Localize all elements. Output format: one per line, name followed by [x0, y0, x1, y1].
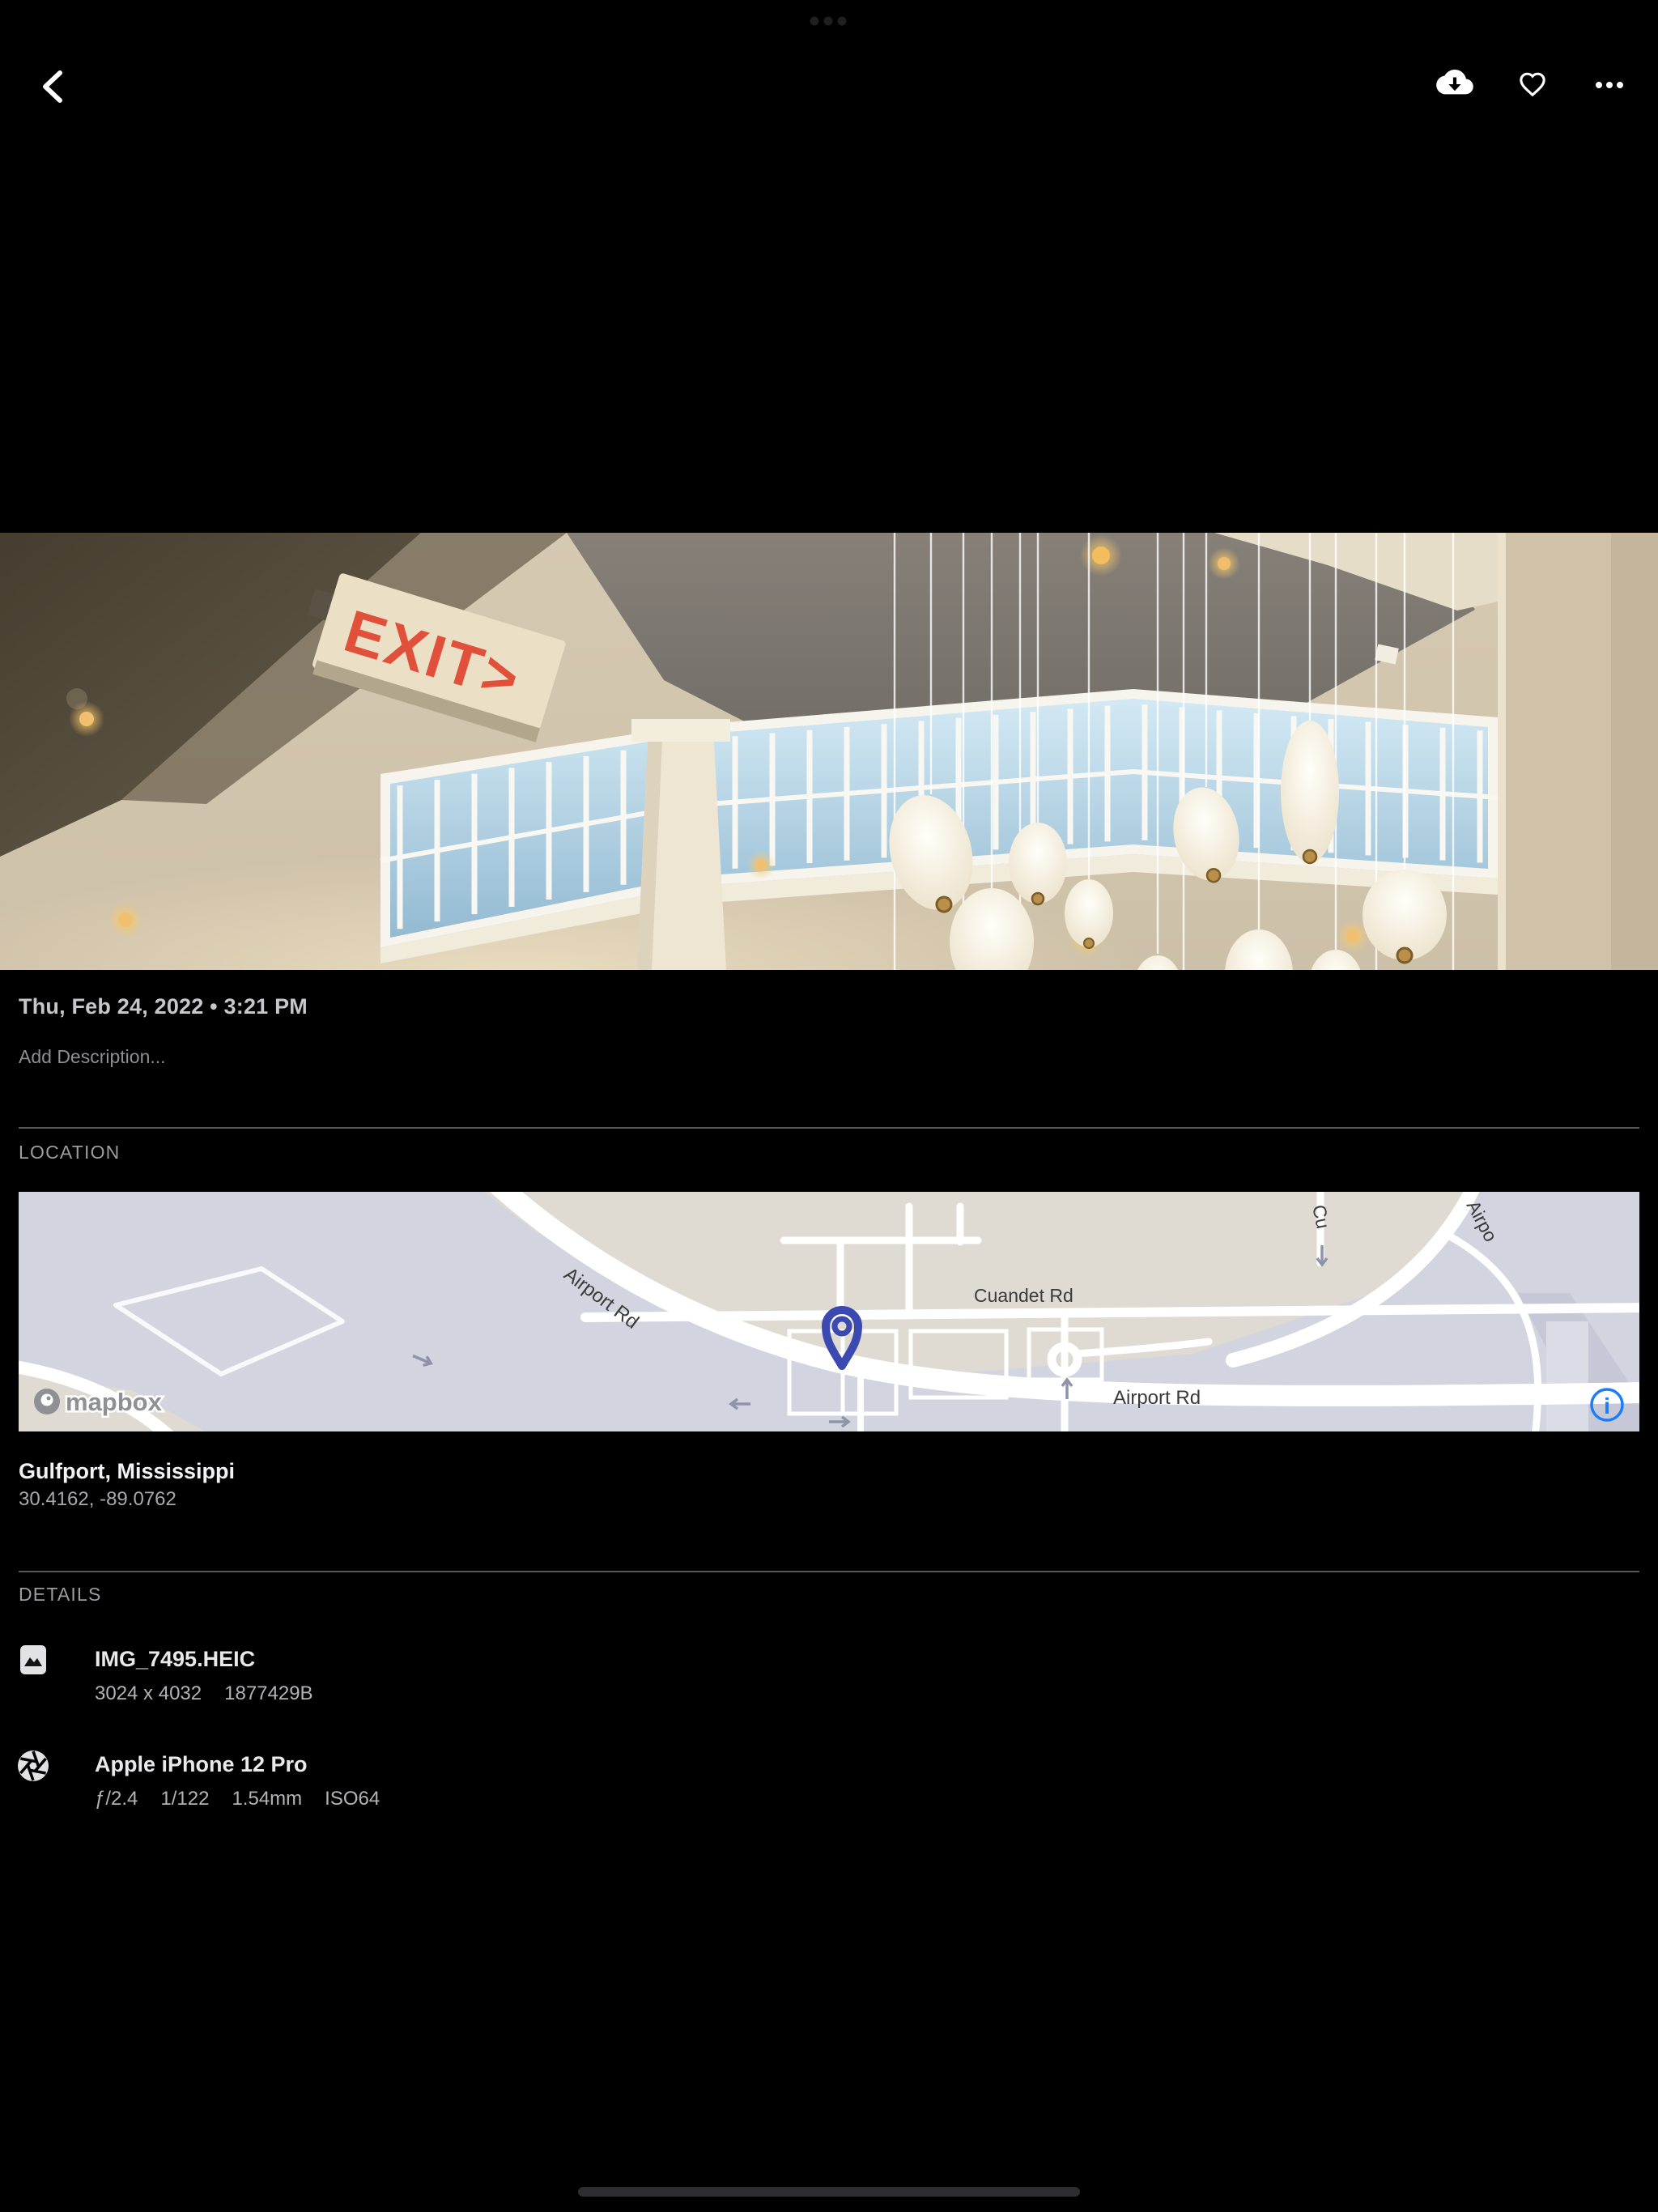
details-header: DETAILS	[19, 1584, 102, 1606]
photo-image: EXIT>	[0, 533, 1658, 970]
camera-shutter: 1/122	[160, 1788, 209, 1810]
mapbox-logo[interactable]: mapbox	[34, 1388, 163, 1416]
home-indicator[interactable]	[578, 2187, 1080, 2197]
download-button[interactable]	[1436, 70, 1473, 100]
location-header: LOCATION	[19, 1142, 120, 1163]
location-map[interactable]: Airport Rd Cuandet Rd Airport Rd Cu Airp…	[19, 1192, 1639, 1431]
back-button[interactable]	[39, 70, 66, 104]
description-input[interactable]: Add Description...	[19, 1046, 166, 1068]
file-meta: 3024 x 40321877429B	[95, 1682, 336, 1705]
favorite-button[interactable]	[1519, 71, 1546, 97]
mapbox-wordmark: mapbox	[66, 1388, 163, 1416]
multitask-dots-icon	[806, 13, 852, 29]
right-wall	[1498, 533, 1658, 970]
camera-model: Apple iPhone 12 Pro	[95, 1752, 308, 1777]
divider	[19, 1571, 1639, 1572]
camera-iso: ISO64	[325, 1788, 380, 1810]
file-name: IMG_7495.HEIC	[95, 1647, 255, 1672]
info-glyph: i	[1604, 1393, 1610, 1419]
location-coordinates: 30.4162, -89.0762	[19, 1488, 176, 1511]
file-size: 1877429B	[224, 1682, 312, 1704]
road-label: Cuandet Rd	[974, 1285, 1073, 1306]
divider	[19, 1127, 1639, 1129]
camera-meta: ƒ/2.41/1221.54mmISO64	[95, 1788, 402, 1810]
image-icon	[19, 1644, 47, 1676]
file-dimensions: 3024 x 4032	[95, 1682, 202, 1704]
photo-detail-screen: EXIT>	[0, 0, 1658, 2212]
camera-focal-length: 1.54mm	[232, 1788, 302, 1810]
location-place: Gulfport, Mississippi	[19, 1459, 235, 1484]
camera-aperture: ƒ/2.4	[95, 1788, 138, 1810]
aperture-icon	[16, 1749, 50, 1783]
road-label: Airport Rd	[1113, 1387, 1201, 1409]
photo[interactable]: EXIT>	[0, 533, 1658, 970]
more-options-button[interactable]	[1593, 78, 1626, 92]
photo-datetime: Thu, Feb 24, 2022 • 3:21 PM	[19, 994, 308, 1019]
